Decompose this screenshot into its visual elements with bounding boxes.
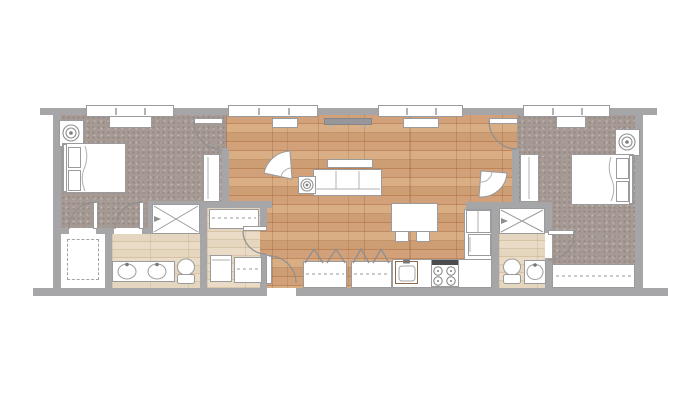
hall-closet-b bbox=[351, 261, 392, 288]
shower2 bbox=[499, 208, 545, 234]
wall-bottom-right bbox=[296, 288, 668, 296]
hall-storage-shelf bbox=[234, 257, 262, 283]
wall-closet1-bath1 bbox=[105, 234, 112, 288]
bed1-headboard bbox=[63, 144, 67, 192]
nightstand2 bbox=[615, 129, 640, 156]
door-leaf-bath1 bbox=[139, 202, 144, 229]
shower1 bbox=[152, 204, 200, 234]
bedroom2-closet bbox=[552, 264, 635, 288]
door-leaf-closet1 bbox=[93, 202, 98, 229]
bedroom1-carpet-lower bbox=[61, 201, 148, 228]
wall-appliance bbox=[468, 234, 491, 256]
bed2-pillow-b bbox=[616, 181, 629, 202]
hall-closet-a bbox=[303, 261, 347, 288]
wall-bath1-hall bbox=[200, 208, 207, 288]
wall-living-bedroom2 bbox=[512, 148, 519, 202]
dining-chair-a bbox=[395, 231, 409, 242]
wall-bedroom1-living bbox=[222, 148, 229, 201]
dining-chair-b bbox=[416, 231, 430, 242]
window-living-right bbox=[378, 105, 463, 117]
window-seat-bedroom1 bbox=[109, 116, 152, 128]
sofa bbox=[313, 169, 382, 196]
window-living-left bbox=[228, 105, 318, 117]
bed1-pillow-b bbox=[68, 170, 81, 191]
dresser2 bbox=[520, 154, 539, 202]
tv bbox=[324, 118, 372, 125]
wall-bath2-bedroom2-bottom bbox=[545, 258, 552, 288]
refrigerator bbox=[466, 210, 491, 233]
walkin-closet-shelving bbox=[67, 239, 99, 280]
door-leaf-bedroom1 bbox=[194, 118, 223, 124]
bedroom2-carpet-lower bbox=[552, 209, 635, 264]
vanity1 bbox=[112, 261, 175, 282]
bed1-pillow-a bbox=[68, 147, 81, 168]
washer bbox=[210, 255, 232, 282]
door-leaf-bath2 bbox=[548, 230, 574, 235]
range-control-panel bbox=[432, 260, 458, 265]
side-table bbox=[298, 176, 316, 194]
window-seat-living-left bbox=[272, 118, 298, 128]
bed2-pillow-a bbox=[616, 158, 629, 179]
door-leaf-hall bbox=[243, 226, 267, 231]
door-leaf-bedroom2 bbox=[489, 118, 518, 124]
bed2-headboard bbox=[629, 155, 633, 204]
dresser1 bbox=[203, 154, 220, 202]
door-leaf-entry bbox=[266, 255, 272, 284]
wall-hall-living-top bbox=[260, 208, 267, 228]
console-table bbox=[327, 159, 373, 168]
wall-kitchen-bath2 bbox=[492, 209, 499, 288]
wall-bottom-left bbox=[33, 288, 267, 296]
vanity2 bbox=[524, 260, 546, 284]
dining-table bbox=[391, 203, 438, 232]
window-seat-living-right bbox=[403, 118, 439, 128]
floor-plan bbox=[0, 0, 700, 400]
wall-bedroom1-south-a bbox=[53, 228, 69, 234]
kitchen-sink bbox=[395, 261, 418, 284]
window-seat-bedroom2 bbox=[556, 116, 586, 128]
